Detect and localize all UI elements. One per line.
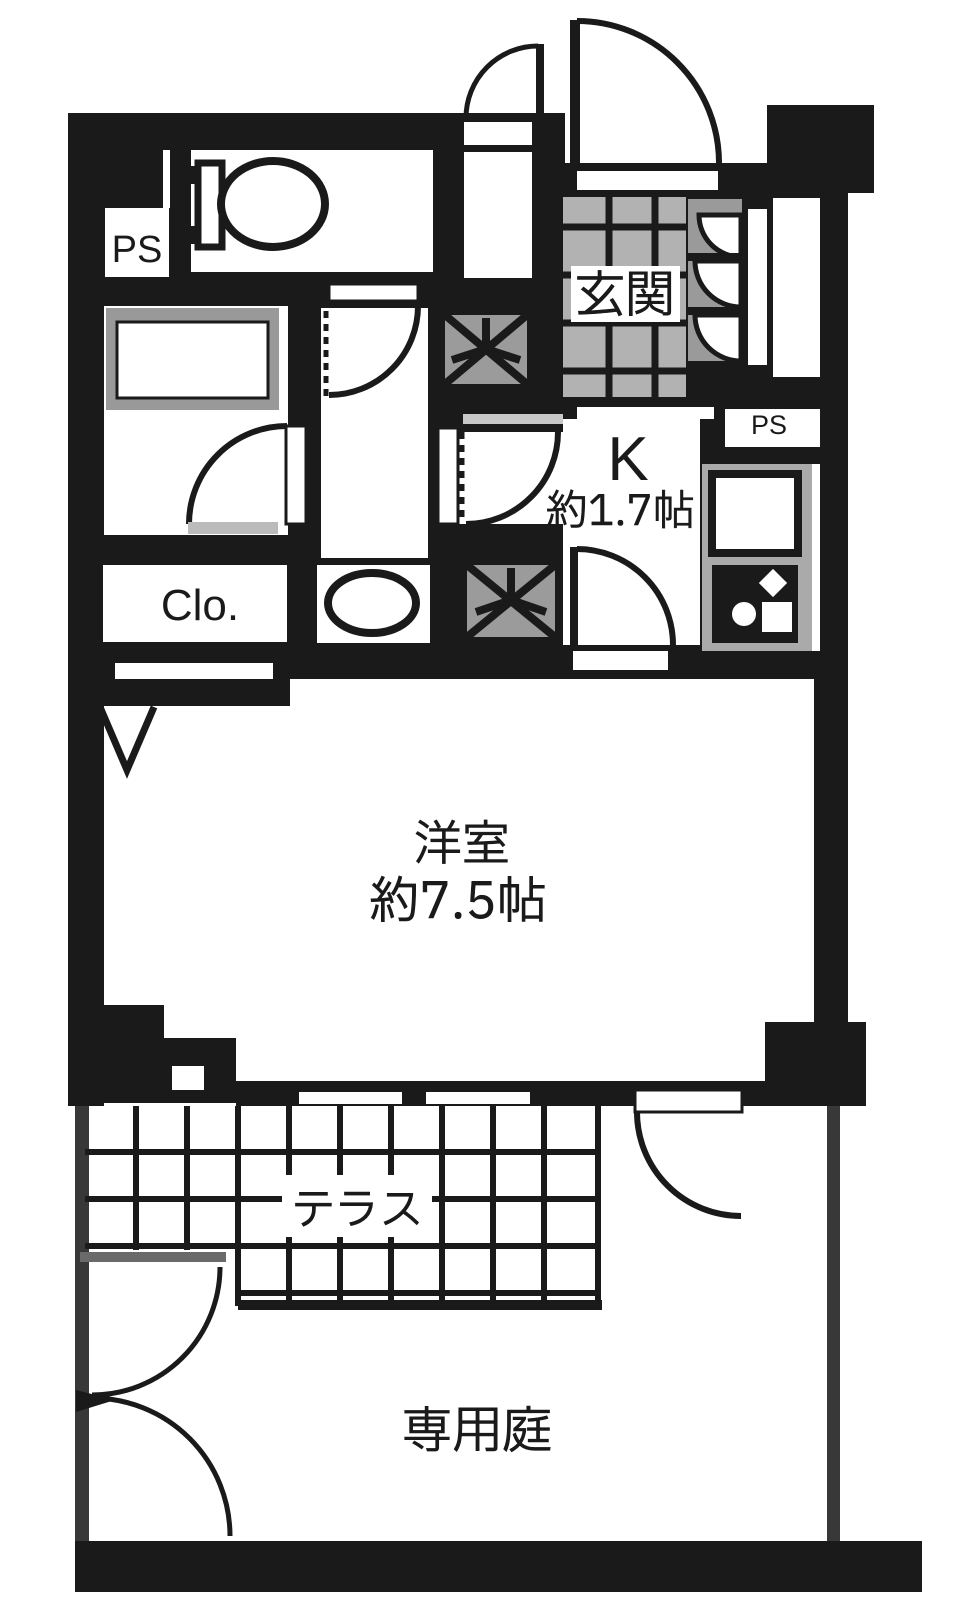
svg-text:K: K <box>607 425 648 494</box>
svg-text:PS: PS <box>112 229 163 271</box>
svg-text:Clo.: Clo. <box>161 581 239 630</box>
svg-text:PS: PS <box>751 410 787 440</box>
